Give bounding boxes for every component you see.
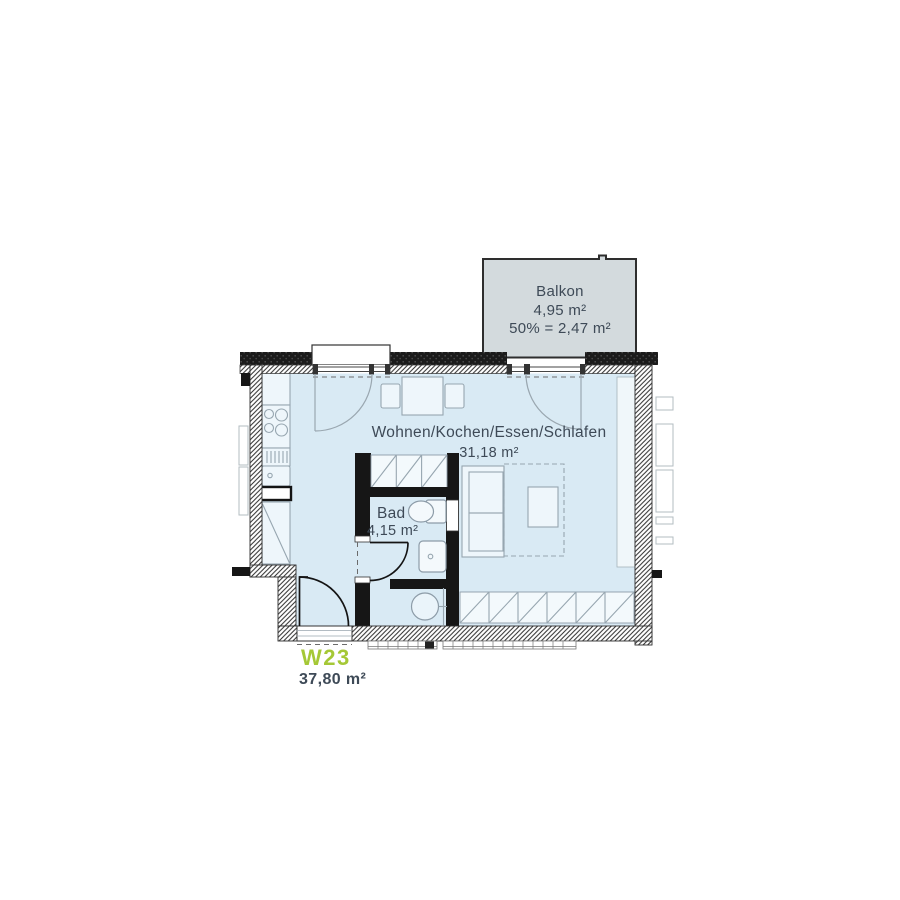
wall-bottom-left — [278, 626, 297, 641]
balcony-area: 4,95 m² — [534, 302, 587, 319]
counter-end-unit — [259, 487, 291, 500]
toilet — [409, 500, 447, 523]
wall-step-horizontal — [250, 565, 296, 577]
bath-area: 4,15 m² — [367, 523, 418, 539]
window-reveal-strip — [617, 377, 635, 567]
dish-drainer — [262, 448, 290, 466]
washbasin — [419, 541, 446, 572]
sofa — [462, 466, 504, 557]
balcony-note: 50% = 2,47 m² — [509, 320, 611, 337]
chair-left — [381, 384, 400, 408]
dining-table — [402, 377, 443, 415]
coffee-table — [528, 487, 558, 527]
living-room-area: 31,18 m² — [459, 445, 519, 461]
sink-unit — [262, 466, 290, 486]
unit-area: 37,80 m² — [299, 671, 366, 688]
door-jamb — [355, 577, 370, 583]
corridor-grating — [368, 641, 576, 649]
shaft-niche — [447, 500, 459, 531]
window-sill — [312, 345, 390, 365]
bath-label: Bad — [377, 505, 405, 522]
cooktop — [262, 405, 290, 448]
bath-wall-top — [355, 487, 459, 497]
wall-step-vertical — [278, 577, 296, 626]
floor-plan: Balkon 4,95 m² 50% = 2,47 m² — [0, 0, 900, 900]
wall-bottom — [352, 626, 652, 641]
bath-wall-left-lower — [355, 583, 370, 626]
floor-plan-canvas: Balkon 4,95 m² 50% = 2,47 m² — [0, 0, 900, 900]
wardrobe — [460, 592, 634, 623]
balcony-region: Balkon 4,95 m² 50% = 2,47 m² — [483, 256, 636, 358]
bath-partition — [390, 579, 459, 589]
wall-left — [250, 365, 262, 577]
unit-id: W23 — [301, 645, 351, 670]
fridge-cabinet — [262, 502, 290, 564]
chair-right — [445, 384, 464, 408]
closet — [355, 453, 459, 489]
balcony-label: Balkon — [536, 283, 584, 300]
kitchen-counter — [259, 373, 291, 564]
wall-right — [635, 365, 652, 645]
entrance-threshold — [297, 626, 352, 641]
living-room-label: Wohnen/Kochen/Essen/Schlafen — [372, 424, 607, 441]
